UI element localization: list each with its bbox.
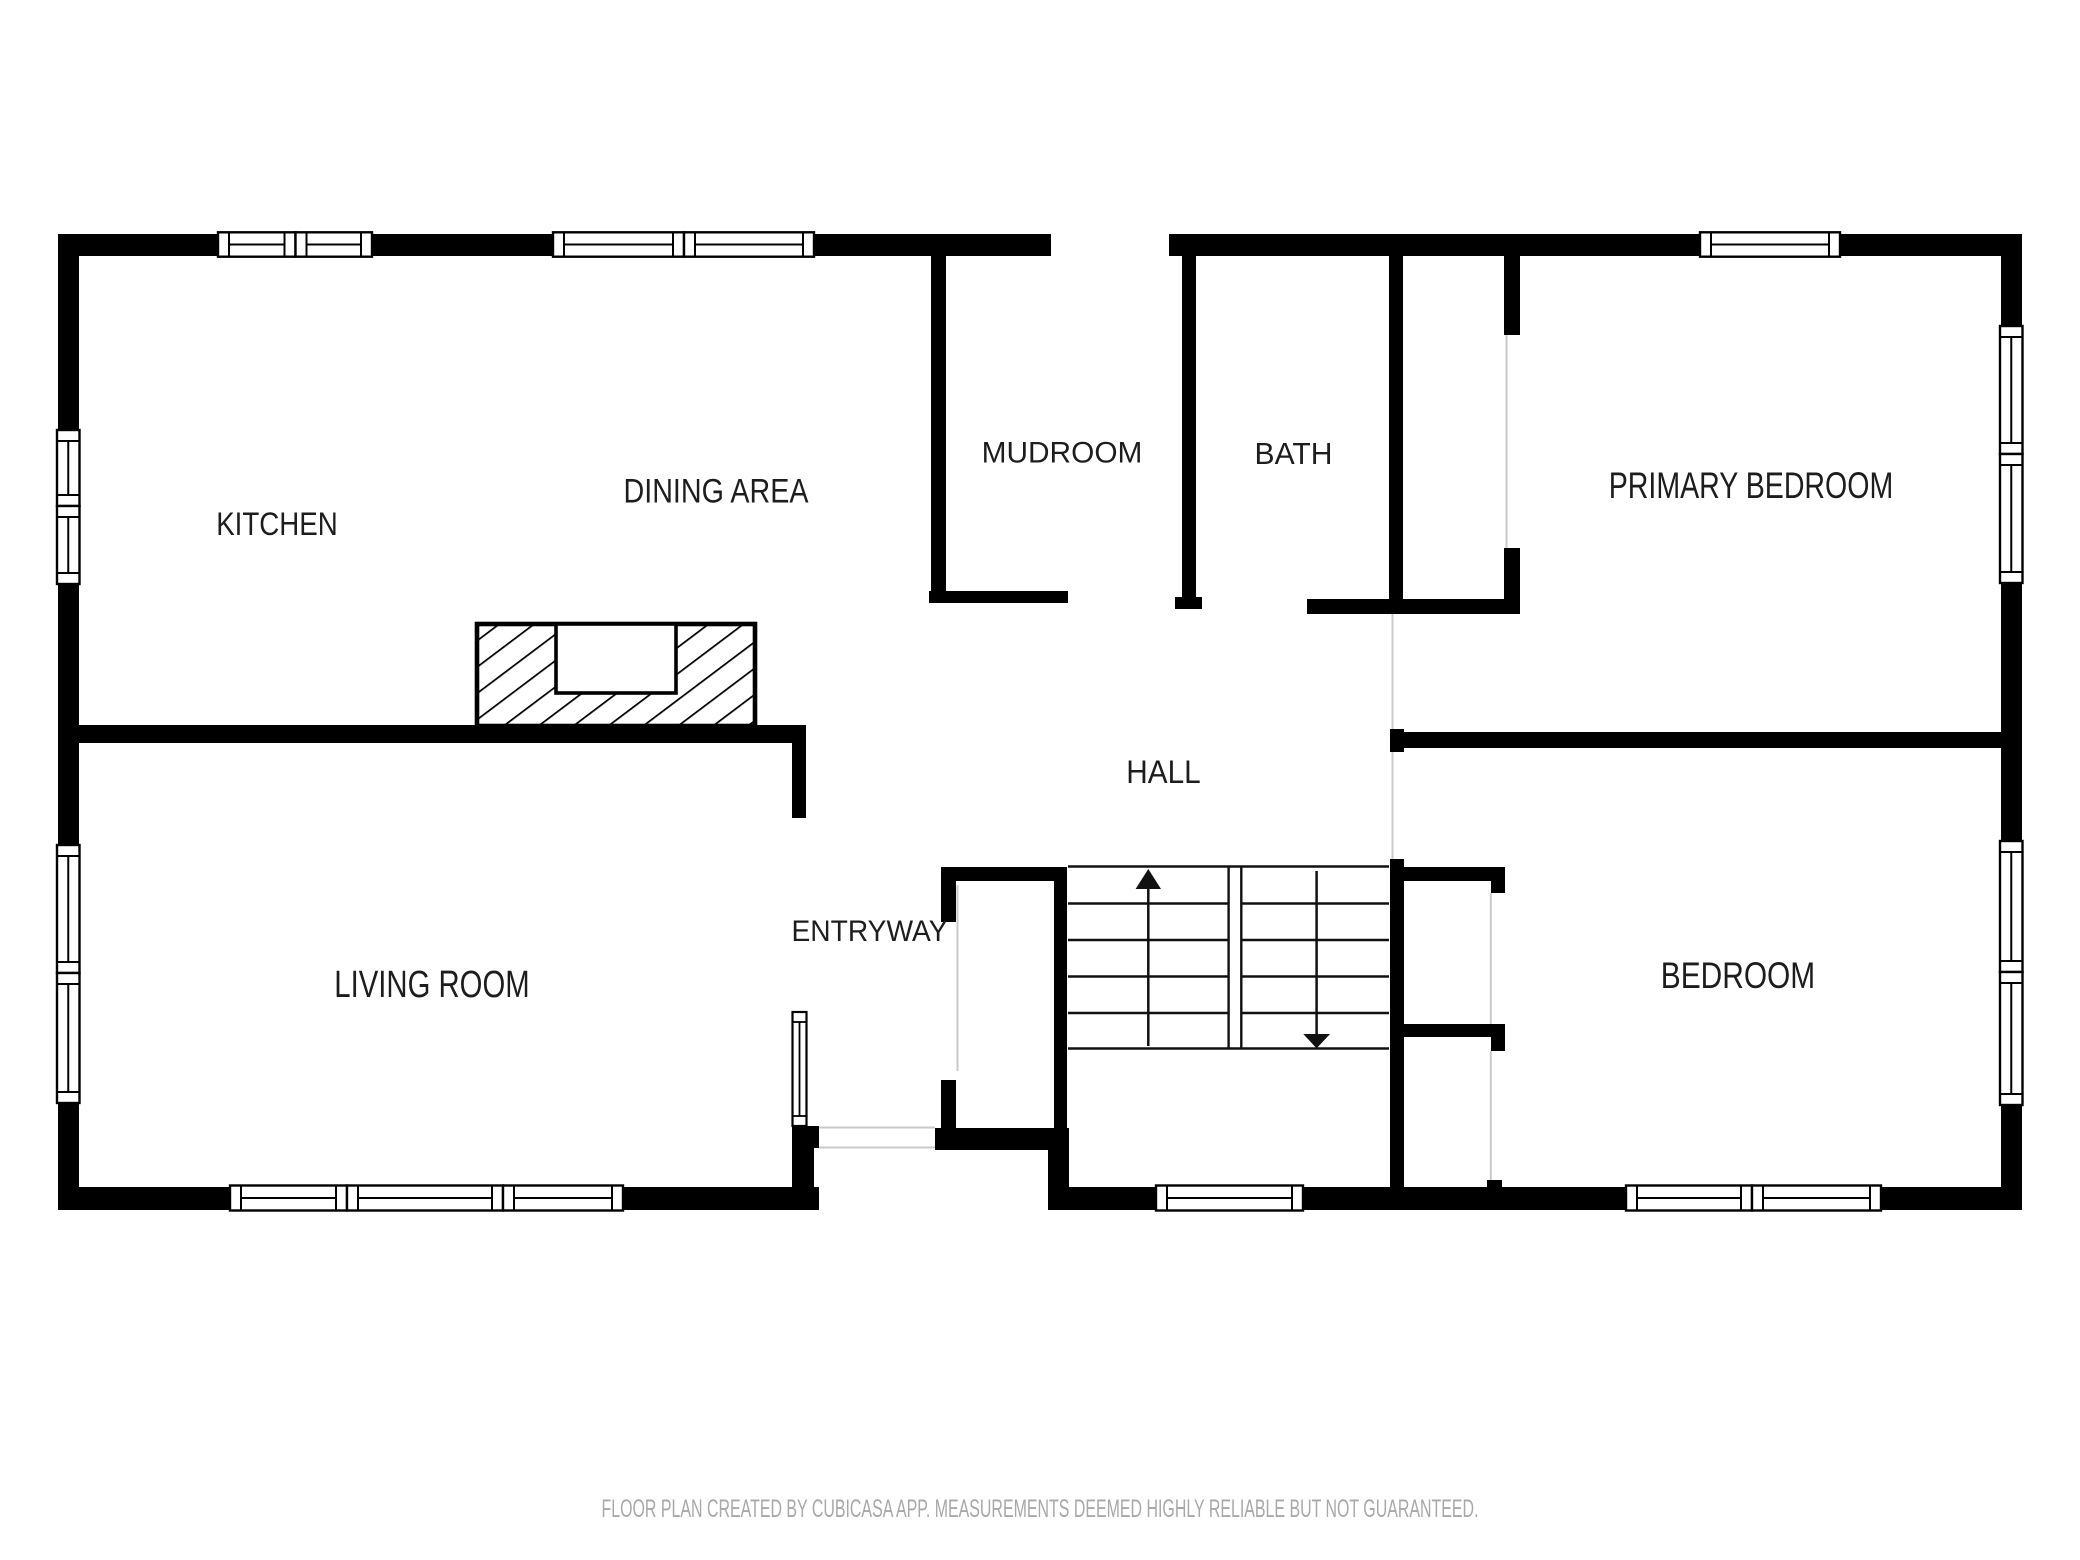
svg-text:MUDROOM: MUDROOM bbox=[982, 437, 1143, 470]
svg-text:DINING AREA: DINING AREA bbox=[624, 473, 809, 511]
svg-text:ENTRYWAY: ENTRYWAY bbox=[792, 915, 948, 948]
svg-text:PRIMARY BEDROOM: PRIMARY BEDROOM bbox=[1609, 465, 1894, 506]
svg-text:BATH: BATH bbox=[1255, 436, 1333, 471]
svg-text:FLOOR PLAN CREATED BY CUBICASA: FLOOR PLAN CREATED BY CUBICASA APP. MEAS… bbox=[602, 1495, 1479, 1523]
svg-text:KITCHEN: KITCHEN bbox=[216, 505, 338, 542]
svg-text:BEDROOM: BEDROOM bbox=[1661, 955, 1815, 996]
svg-text:HALL: HALL bbox=[1126, 754, 1200, 790]
svg-text:LIVING ROOM: LIVING ROOM bbox=[334, 963, 529, 1006]
